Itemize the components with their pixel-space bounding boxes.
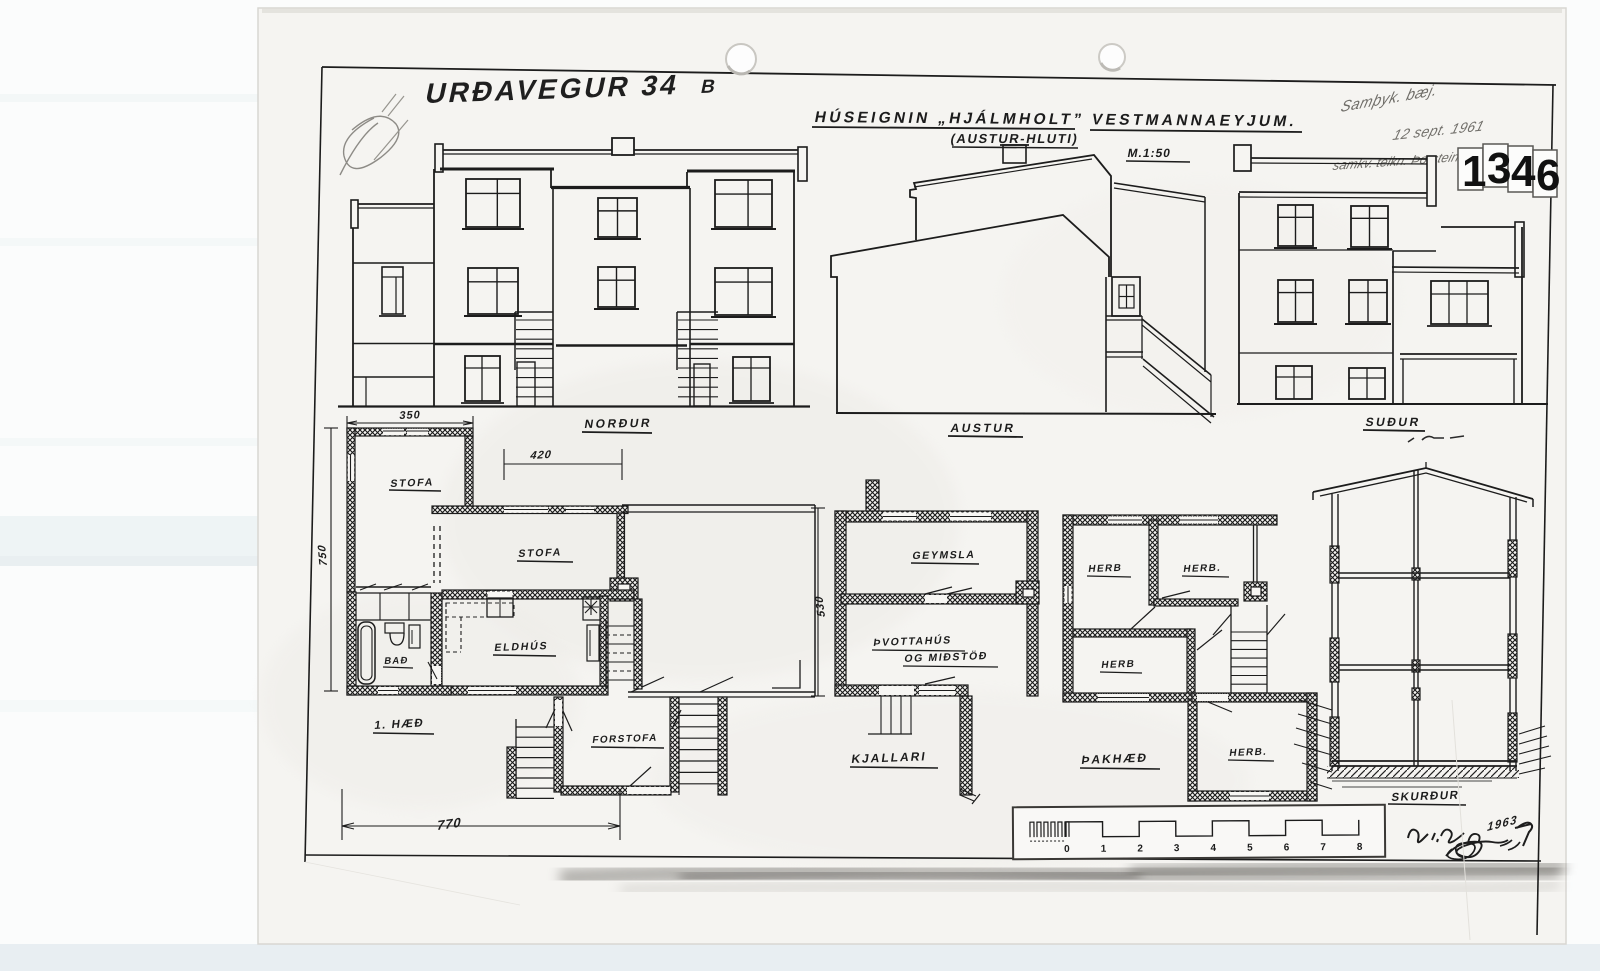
svg-text:GEYMSLA: GEYMSLA: [912, 549, 977, 562]
svg-text:NORÐUR: NORÐUR: [584, 416, 654, 431]
svg-text:M.1:50: M.1:50: [1126, 146, 1172, 160]
svg-text:4: 4: [1511, 147, 1536, 196]
svg-text:SKURÐUR: SKURÐUR: [1391, 790, 1461, 804]
svg-text:1: 1: [1101, 844, 1107, 855]
svg-text:6: 6: [1536, 151, 1560, 200]
svg-text:0: 0: [1064, 844, 1070, 855]
svg-text:BAÐ: BAÐ: [384, 655, 410, 667]
svg-text:KJALLARI: KJALLARI: [851, 749, 928, 766]
svg-text:4: 4: [1210, 843, 1216, 854]
svg-text:3: 3: [1487, 144, 1511, 193]
svg-text:HERB.: HERB.: [1183, 563, 1223, 575]
svg-text:750: 750: [316, 544, 330, 566]
svg-text:7: 7: [1320, 842, 1326, 853]
svg-text:HERB: HERB: [1088, 563, 1123, 575]
svg-text:SUÐUR: SUÐUR: [1364, 415, 1422, 429]
svg-text:6: 6: [1284, 842, 1290, 853]
svg-text:STOFA: STOFA: [518, 546, 563, 560]
svg-text:350: 350: [399, 409, 422, 422]
svg-text:3: 3: [1174, 843, 1180, 854]
svg-text:HERB: HERB: [1101, 659, 1136, 671]
svg-text:2: 2: [1137, 843, 1143, 854]
svg-text:5: 5: [1247, 843, 1253, 854]
svg-text:8: 8: [1357, 842, 1363, 853]
svg-text:ÞAKHÆÐ: ÞAKHÆÐ: [1081, 751, 1150, 767]
svg-text:1: 1: [1462, 147, 1488, 196]
svg-text:FORSTOFA: FORSTOFA: [592, 733, 659, 746]
svg-text:STOFA: STOFA: [390, 476, 435, 490]
svg-text:ELDHÚS: ELDHÚS: [494, 639, 550, 654]
svg-text:AUSTUR: AUSTUR: [949, 421, 1016, 435]
svg-text:420: 420: [529, 449, 553, 462]
svg-text:(AUSTUR-HLUTI): (AUSTUR-HLUTI): [949, 131, 1079, 146]
svg-text:HERB.: HERB.: [1229, 747, 1269, 759]
